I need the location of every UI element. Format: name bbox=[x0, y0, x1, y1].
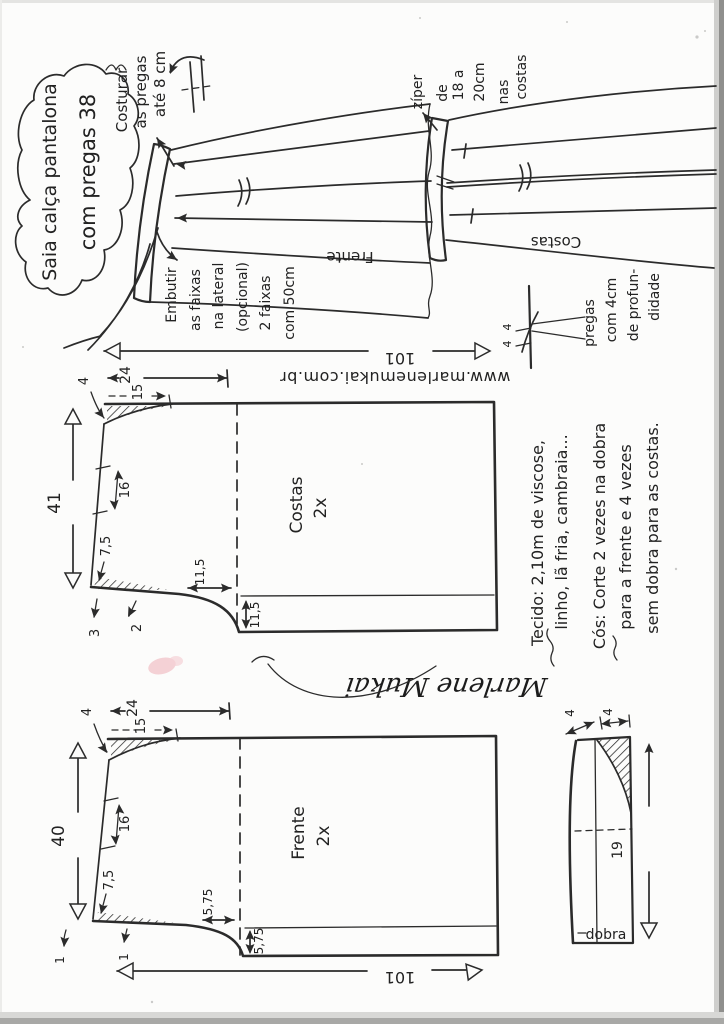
zipper-note-line: de bbox=[435, 84, 451, 102]
inner-inseam-line bbox=[245, 926, 496, 928]
front-sketch-label: Frente bbox=[326, 248, 373, 266]
hatch-wedge-bottom bbox=[94, 577, 168, 590]
insert-note-line: 2 faixas bbox=[258, 276, 274, 331]
dim-24: 24 bbox=[125, 699, 141, 717]
allowance-2: 2 bbox=[130, 624, 145, 632]
back-garment-sketch: Costas bbox=[420, 86, 716, 268]
left-edge-shadow bbox=[0, 0, 2, 1024]
pleat-depth-detail: 4 4 pregas com 4cm de profun- didade bbox=[501, 269, 663, 368]
waist-slant-edge bbox=[93, 760, 109, 919]
dim-7-5: 7,5 bbox=[102, 870, 117, 891]
dim-575v: 5,75 bbox=[252, 928, 266, 955]
waistband-strip-piece: dobra 19 4 4 bbox=[563, 708, 657, 943]
insert-note-line: (opcional) bbox=[235, 262, 251, 332]
arrowhead bbox=[111, 835, 121, 846]
sew-note-line: até 8 cm bbox=[151, 51, 169, 117]
width-value: 101 bbox=[385, 349, 416, 368]
signature-text: Marlene Mukai bbox=[343, 671, 550, 701]
zipper-note-line: nas bbox=[496, 80, 512, 105]
open-arrowhead-down bbox=[641, 923, 657, 938]
insert-bands-note: Embutir as faixas na lateral (opcional) … bbox=[164, 262, 298, 340]
pleat-note-line: pregas bbox=[582, 299, 598, 347]
insert-note-line: na lateral bbox=[211, 263, 227, 330]
open-arrowhead-down bbox=[65, 573, 81, 588]
waist-slant-edge bbox=[91, 424, 104, 585]
signature-block: Marlene Mukai bbox=[252, 656, 550, 700]
width-value: 101 bbox=[385, 968, 416, 987]
dim-575h: 5,75 bbox=[201, 889, 215, 916]
pattern-title-line2: com pregas 38 bbox=[76, 94, 100, 251]
fabric-note-line: Cós: Corte 2 vezes na dobra bbox=[590, 423, 609, 649]
band-width-a: 4 bbox=[563, 709, 577, 717]
allowance-arrows bbox=[64, 929, 127, 946]
dim-41: 41 bbox=[45, 492, 65, 514]
pleat-tick-marks bbox=[519, 163, 531, 191]
fabric-notes: Tecido: 2,10m de viscose, linho, lã fria… bbox=[528, 422, 662, 666]
dim-7-5: 7,5 bbox=[99, 536, 114, 557]
stitch-detail-dash bbox=[182, 86, 210, 90]
front-pattern-piece: Frente 2x 4 24 15 40 16 7,5 5,75 5,75 1 … bbox=[49, 699, 498, 964]
sew-pleats-note: Costurar as pregas até 8 cm bbox=[113, 51, 210, 132]
open-arrowhead-left bbox=[118, 963, 133, 979]
arrowhead bbox=[583, 718, 596, 730]
dim-15: 15 bbox=[134, 718, 149, 735]
dim-11-5v: 11,5 bbox=[248, 602, 262, 629]
dim-24: 24 bbox=[118, 366, 134, 384]
fabric-note-line: Tecido: 2,10m de viscose, bbox=[528, 440, 547, 647]
piece-quantity: 2x bbox=[314, 826, 334, 847]
front-piece-width-dimension: 101 bbox=[117, 962, 483, 987]
fabric-note-line: linho, lã fria, cambraia... bbox=[552, 434, 571, 629]
pleat-note-line: com 4cm bbox=[604, 278, 620, 343]
pleat-tick-marks bbox=[238, 178, 250, 206]
pink-smudge bbox=[146, 655, 183, 677]
website-watermark: www.marlenemukai.com.br bbox=[280, 368, 511, 387]
arrowhead bbox=[115, 804, 125, 815]
dim-11-5h: 11,5 bbox=[193, 559, 207, 586]
insert-note-line: Embutir bbox=[164, 267, 180, 323]
fold-label: dobra bbox=[586, 927, 627, 943]
open-arrowhead-down bbox=[70, 904, 86, 919]
top-edge-shadow bbox=[0, 0, 724, 3]
dim-16: 16 bbox=[118, 816, 133, 833]
arrowhead bbox=[110, 500, 120, 511]
fabric-note-line: para a frente e 4 vezes bbox=[616, 444, 635, 629]
dim-15: 15 bbox=[131, 384, 146, 401]
pattern-title-line1: Saia calça pantalona bbox=[39, 83, 61, 281]
dim-16: 16 bbox=[118, 482, 133, 499]
arrowhead bbox=[98, 742, 111, 755]
arrowhead bbox=[163, 726, 173, 735]
fold-inner-line bbox=[595, 739, 597, 943]
zipper-note-line: costas bbox=[514, 55, 530, 100]
fabric-note-line: sem dobra para as costas. bbox=[643, 422, 662, 634]
dim-19: 19 bbox=[610, 841, 626, 859]
zipper-note: zíper de 18 a 20cm nas costas bbox=[410, 55, 530, 110]
open-arrowhead-left bbox=[105, 343, 120, 359]
open-arrowhead-up bbox=[70, 743, 86, 758]
dim-40: 40 bbox=[49, 825, 69, 847]
allowance-3: 3 bbox=[88, 629, 103, 637]
arrowhead bbox=[120, 932, 131, 943]
allowance-1a: 1 bbox=[53, 956, 67, 964]
bottom-edge-shadow bbox=[0, 1012, 724, 1018]
outer-curved-edge bbox=[570, 741, 576, 943]
arrowhead bbox=[124, 606, 137, 619]
open-arrowhead-right bbox=[466, 962, 483, 980]
back-pattern-piece: Costas 2x 4 24 15 41 16 7,5 11,5 11,5 3 … bbox=[45, 366, 497, 637]
piece-name: Frente bbox=[289, 806, 309, 860]
zipper-note-line: 18 a bbox=[451, 70, 467, 101]
pleat-depth-value: 4 bbox=[501, 324, 514, 331]
arrowhead bbox=[564, 726, 577, 738]
piece-quantity: 2x bbox=[311, 498, 331, 519]
open-arrowhead-up bbox=[65, 409, 81, 424]
dim-4: 4 bbox=[80, 708, 95, 716]
arrowhead bbox=[175, 160, 186, 170]
scanned-sewing-pattern-page: Saia calça pantalona com pregas 38 Costu… bbox=[0, 0, 724, 1024]
hatch-wedge-top bbox=[111, 740, 178, 759]
back-piece-width-dimension: 101 bbox=[104, 343, 490, 368]
right-edge-dark bbox=[719, 0, 724, 1024]
insert-note-line: as faixas bbox=[188, 269, 204, 331]
arrowhead bbox=[114, 470, 124, 481]
pleat-note-line: de profun- bbox=[626, 269, 642, 342]
pleat-depth-value: 4 bbox=[501, 341, 514, 348]
back-sketch-label: Costas bbox=[531, 233, 582, 251]
arrowhead bbox=[94, 407, 107, 420]
insert-note-line: com 50cm bbox=[282, 266, 298, 340]
bottom-edge-dark bbox=[0, 1018, 724, 1024]
zipper-note-line: 20cm bbox=[472, 62, 488, 101]
dimension-line bbox=[117, 970, 480, 971]
edge-tick-marks bbox=[93, 466, 110, 514]
pleat-note-line: didade bbox=[647, 273, 663, 321]
band-width-b: 4 bbox=[601, 708, 615, 716]
hatch-wedge-top bbox=[107, 406, 170, 423]
leader-lines bbox=[532, 317, 585, 339]
allowance-1b: 1 bbox=[117, 953, 131, 961]
zipper-note-line: zíper bbox=[410, 75, 426, 110]
right-edge-shadow bbox=[714, 0, 719, 1024]
dashed-fold-line bbox=[575, 829, 632, 831]
inner-inseam-line bbox=[241, 595, 494, 596]
pattern-drawing: Saia calça pantalona com pregas 38 Costu… bbox=[0, 0, 724, 1024]
hatch-curved-area bbox=[597, 738, 631, 813]
curved-arrow bbox=[170, 57, 204, 72]
piece-name: Costas bbox=[287, 476, 307, 533]
stitch-detail-lines bbox=[190, 56, 204, 112]
open-arrowhead-right bbox=[475, 343, 490, 359]
dim-4: 4 bbox=[77, 377, 92, 385]
sew-note-line: Costurar bbox=[113, 67, 131, 132]
sew-note-line: as pregas bbox=[132, 55, 150, 128]
